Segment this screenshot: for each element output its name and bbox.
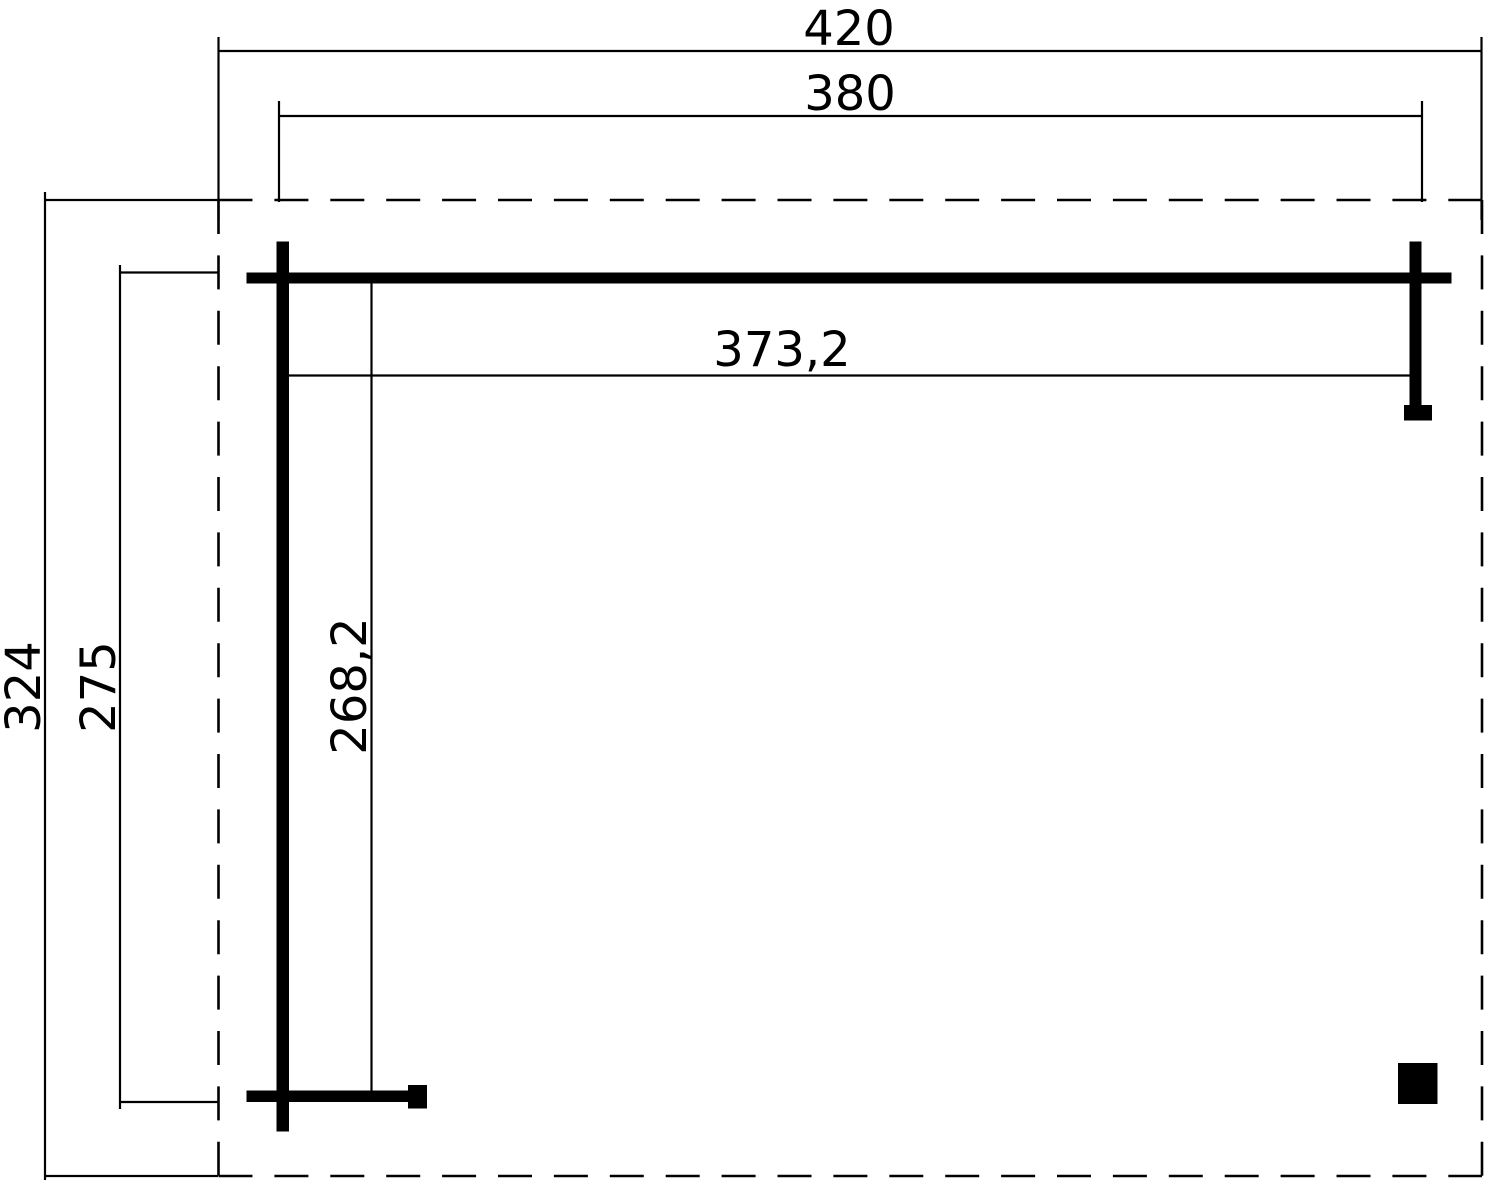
dim-label-inner-depth: 268,2 [322,617,378,754]
dimension-canopy-width: 380 [279,66,1422,202]
wall-top [247,273,1452,284]
dim-label-canopy-depth: 275 [71,641,127,733]
dimension-inner-width: 373,2 [288,322,1410,378]
dim-label-inner-width: 373,2 [713,322,850,378]
wall-left [277,242,290,1132]
floor-plan-drawing: 420 380 324 275 373,2 [0,0,1488,1184]
beam-bottom-left-foot [408,1085,427,1109]
post-top-right-foot [1404,405,1432,421]
dim-label-total-depth: 324 [0,641,52,733]
floor-plan-canvas: 420 380 324 275 373,2 [0,0,1488,1184]
post-top-right [1410,242,1422,408]
dimension-canopy-depth: 275 [71,265,218,1109]
beam-bottom-left [247,1091,411,1103]
dim-label-canopy-width: 380 [804,66,896,122]
dimension-inner-depth: 268,2 [322,284,378,1091]
post-bottom-right [1398,1063,1438,1104]
dim-label-total-width: 420 [803,1,895,57]
